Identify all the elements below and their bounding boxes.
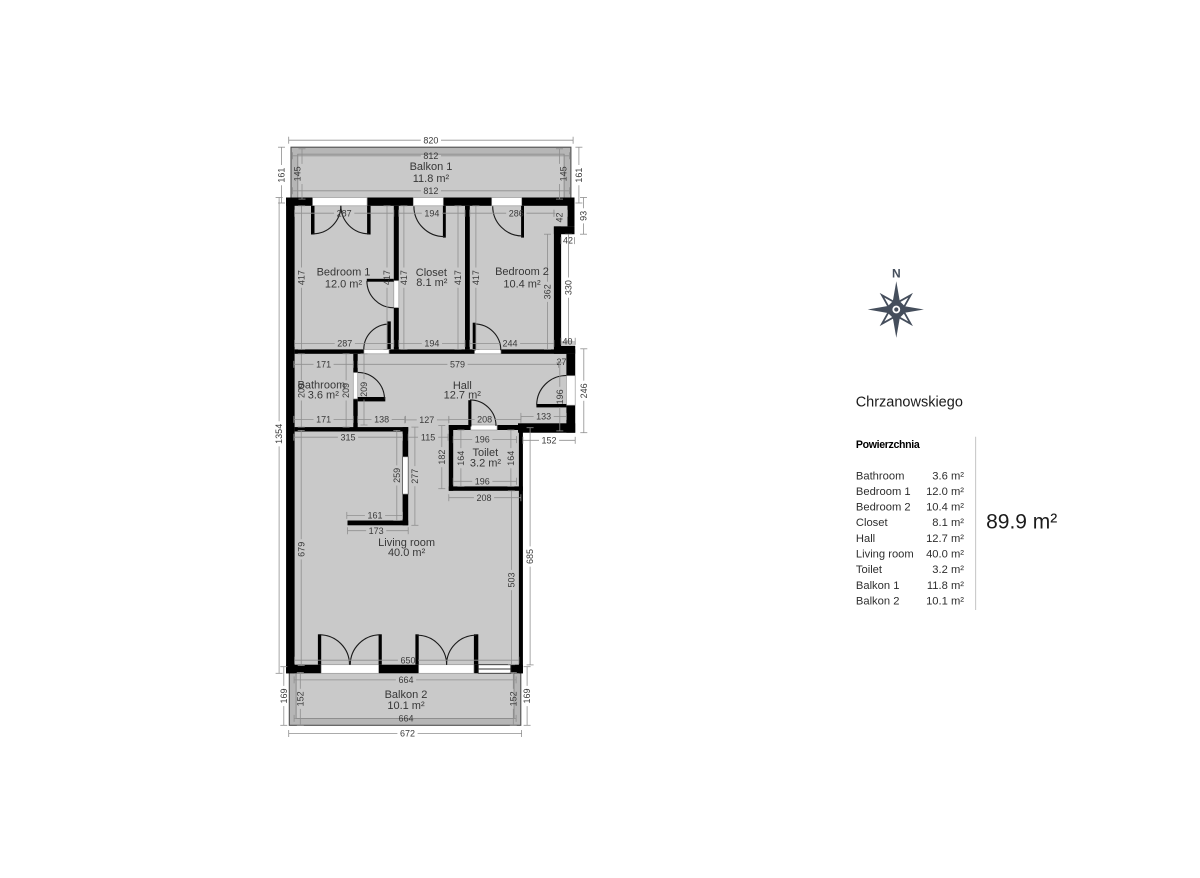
svg-text:196: 196 [475, 435, 490, 445]
svg-text:152: 152 [295, 691, 305, 706]
svg-text:3.2 m²: 3.2 m² [470, 457, 502, 469]
svg-text:417: 417 [453, 270, 463, 285]
svg-text:812: 812 [423, 186, 438, 196]
svg-text:145: 145 [292, 166, 302, 181]
svg-text:182: 182 [437, 450, 447, 465]
svg-text:10.1 m²: 10.1 m² [926, 596, 964, 608]
svg-text:115: 115 [421, 432, 435, 442]
svg-text:127: 127 [419, 415, 434, 425]
svg-text:259: 259 [392, 468, 402, 483]
svg-text:40.0 m²: 40.0 m² [926, 549, 964, 561]
svg-text:209: 209 [359, 382, 369, 397]
svg-text:194: 194 [424, 208, 439, 218]
svg-text:171: 171 [316, 415, 331, 425]
svg-text:N: N [892, 267, 901, 281]
svg-text:579: 579 [450, 359, 465, 369]
svg-text:664: 664 [398, 714, 413, 724]
svg-text:208: 208 [477, 415, 492, 425]
svg-text:145: 145 [559, 166, 569, 181]
svg-text:11.8 m²: 11.8 m² [927, 580, 964, 592]
svg-text:Hall: Hall [856, 533, 875, 545]
svg-text:Toilet: Toilet [856, 564, 883, 576]
svg-text:196: 196 [475, 476, 490, 486]
svg-text:685: 685 [525, 549, 535, 564]
svg-text:161: 161 [367, 511, 382, 521]
svg-text:Bedroom 1: Bedroom 1 [856, 486, 911, 498]
svg-text:330: 330 [564, 280, 574, 295]
svg-text:164: 164 [456, 451, 466, 466]
svg-text:Bedroom 2: Bedroom 2 [495, 266, 549, 278]
svg-text:152: 152 [541, 435, 556, 445]
svg-text:89.9 m²: 89.9 m² [986, 511, 1057, 534]
svg-text:Balkon 1: Balkon 1 [856, 580, 900, 592]
svg-text:194: 194 [424, 339, 439, 349]
svg-text:8.1 m²: 8.1 m² [932, 517, 964, 529]
svg-text:8.1 m²: 8.1 m² [416, 277, 448, 289]
svg-text:138: 138 [374, 415, 389, 425]
svg-text:672: 672 [400, 729, 415, 739]
svg-text:40: 40 [562, 336, 572, 346]
svg-text:10.4 m²: 10.4 m² [926, 502, 964, 514]
svg-text:169: 169 [522, 688, 532, 703]
svg-text:287: 287 [337, 339, 352, 349]
svg-text:3.6 m²: 3.6 m² [308, 389, 340, 401]
svg-text:164: 164 [506, 451, 516, 466]
svg-text:679: 679 [296, 542, 306, 557]
svg-text:40.0 m²: 40.0 m² [388, 547, 426, 559]
svg-text:286: 286 [509, 208, 524, 218]
svg-text:10.4 m²: 10.4 m² [503, 278, 541, 290]
svg-text:10.1 m²: 10.1 m² [387, 700, 425, 712]
svg-text:417: 417 [399, 270, 409, 285]
svg-text:11.8 m²: 11.8 m² [413, 173, 450, 185]
svg-text:27: 27 [556, 357, 566, 367]
svg-text:Bedroom 1: Bedroom 1 [317, 266, 371, 278]
svg-text:Living room: Living room [856, 549, 914, 561]
svg-text:42: 42 [555, 212, 565, 222]
svg-text:417: 417 [297, 270, 307, 285]
svg-text:Bedroom 2: Bedroom 2 [856, 502, 911, 514]
svg-text:362: 362 [543, 284, 553, 299]
svg-text:417: 417 [471, 270, 481, 285]
svg-text:42: 42 [563, 236, 573, 246]
svg-text:Powierzchnia: Powierzchnia [856, 439, 920, 451]
svg-text:93: 93 [579, 211, 589, 221]
svg-text:3.2 m²: 3.2 m² [932, 564, 964, 576]
svg-text:812: 812 [423, 151, 438, 161]
svg-text:161: 161 [277, 168, 287, 183]
svg-text:Balkon 2: Balkon 2 [856, 596, 900, 608]
svg-text:169: 169 [279, 688, 289, 703]
svg-text:650: 650 [400, 655, 415, 665]
svg-text:Chrzanowskiego: Chrzanowskiego [856, 395, 963, 411]
svg-text:315: 315 [340, 432, 355, 442]
svg-text:12.0 m²: 12.0 m² [926, 486, 964, 498]
svg-text:287: 287 [337, 208, 352, 218]
svg-text:161: 161 [574, 168, 584, 183]
svg-text:171: 171 [316, 359, 331, 369]
svg-text:12.7 m²: 12.7 m² [444, 389, 482, 401]
svg-text:1354: 1354 [274, 424, 284, 444]
svg-text:Balkon 1: Balkon 1 [410, 161, 453, 173]
svg-text:277: 277 [410, 469, 420, 484]
svg-text:417: 417 [382, 270, 392, 285]
svg-text:244: 244 [502, 339, 517, 349]
svg-text:Closet: Closet [856, 517, 889, 529]
svg-text:664: 664 [398, 675, 413, 685]
svg-text:Bathroom: Bathroom [856, 470, 905, 482]
svg-text:246: 246 [579, 383, 589, 398]
svg-text:503: 503 [507, 572, 517, 587]
svg-text:12.7 m²: 12.7 m² [926, 533, 964, 545]
svg-text:173: 173 [369, 526, 384, 536]
svg-text:152: 152 [508, 691, 518, 706]
svg-text:133: 133 [536, 412, 551, 422]
svg-text:820: 820 [423, 135, 438, 145]
svg-text:208: 208 [476, 493, 491, 503]
svg-text:3.6 m²: 3.6 m² [932, 470, 964, 482]
svg-text:12.0 m²: 12.0 m² [325, 278, 363, 290]
svg-text:196: 196 [555, 389, 565, 404]
